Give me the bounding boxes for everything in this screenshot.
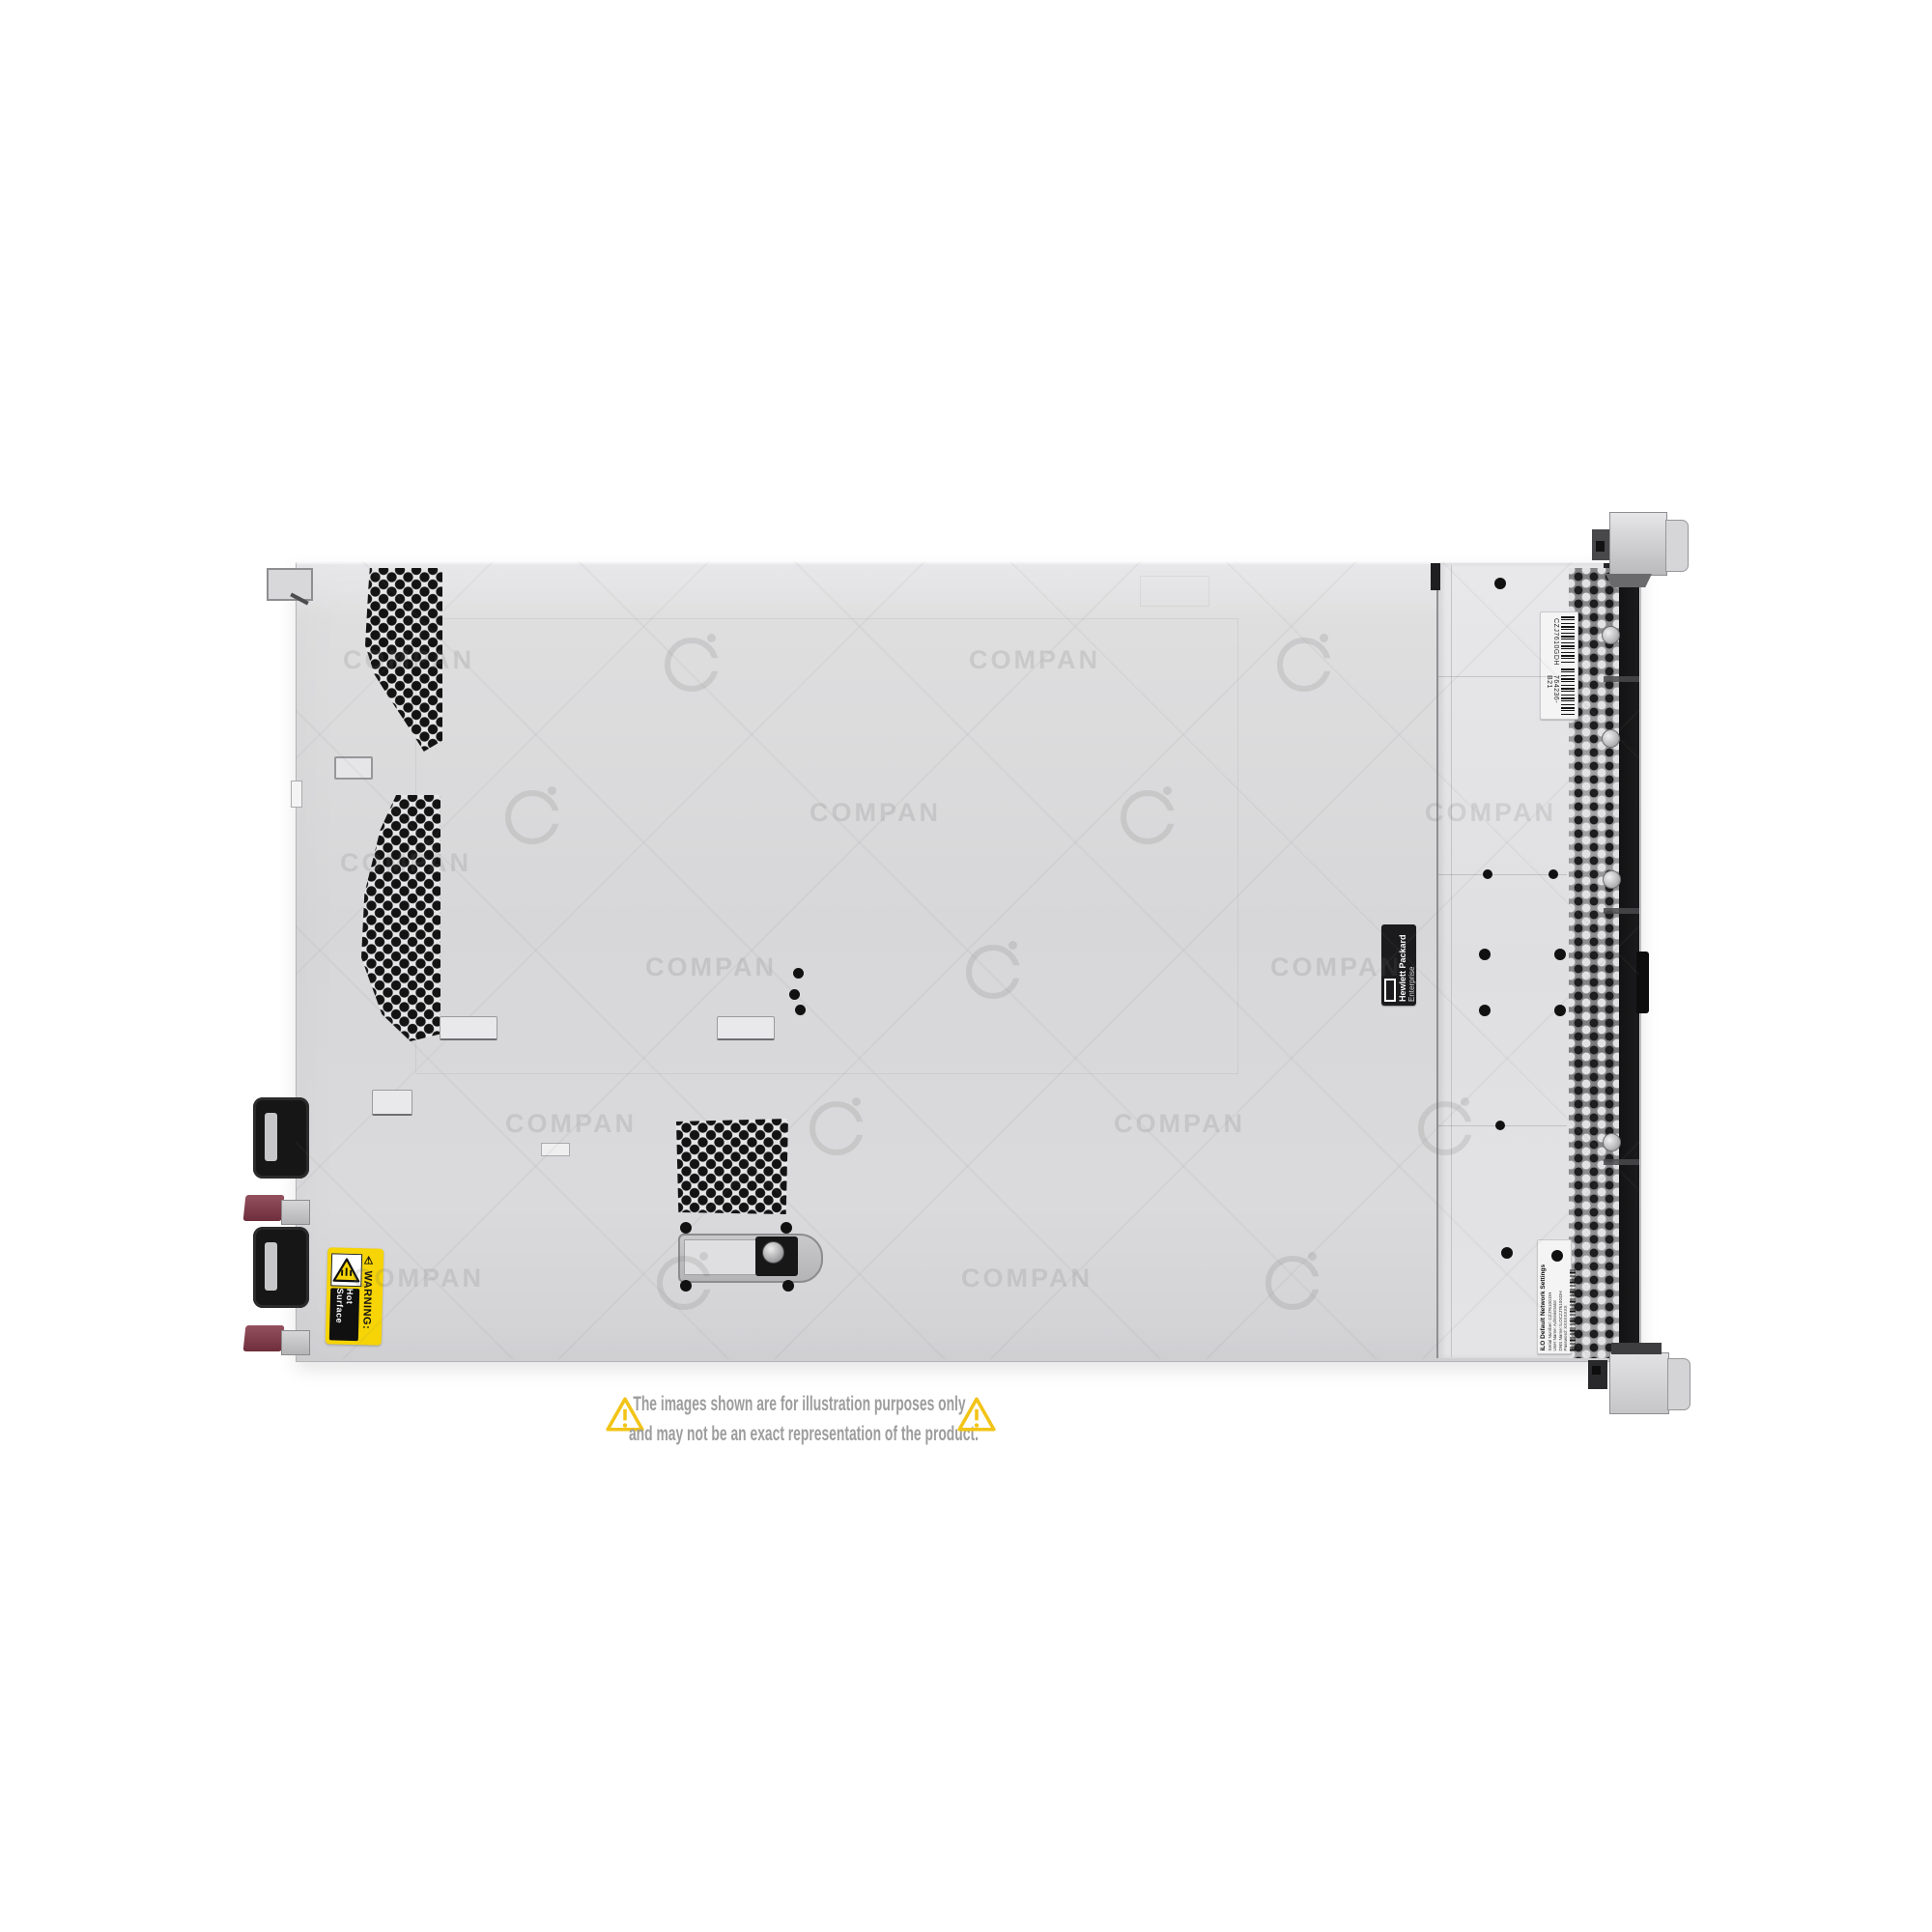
front-panel-seam: [1438, 676, 1567, 677]
screw-hole: [1554, 1005, 1566, 1016]
cover-keyhole-recess: [372, 1090, 412, 1116]
rack-ear-top: [1609, 512, 1667, 576]
cover-divider-tab: [1431, 563, 1440, 590]
warning-triangle-icon: [330, 1253, 362, 1287]
disclaimer-line1: The images shown are for illustration pu…: [629, 1389, 970, 1419]
torx-screw: [1603, 870, 1621, 889]
screw-hole: [1554, 949, 1566, 960]
rack-ear-bottom-latch: [1588, 1360, 1607, 1389]
cover-latch-recess: [684, 1239, 759, 1275]
rack-ear-top-shadow: [1605, 574, 1652, 587]
barcode: [1561, 616, 1575, 663]
rack-ear-top-thumbscrew: [1665, 520, 1689, 572]
ilo-label-line: Password: XXXXXXXX: [1563, 1240, 1568, 1350]
front-panel-seam: [1438, 874, 1567, 875]
serial-number-text: CZJ7610GDH: [1546, 618, 1559, 666]
rack-ear-bottom-face: [1611, 1343, 1662, 1354]
front-panel-seam: [1438, 1125, 1567, 1126]
part-number-text: 764236-B21: [1546, 675, 1559, 713]
hot-surface-warning-label: ⚠ WARNING: Hot Surface: [326, 1247, 384, 1345]
hpe-brand-line1: Hewlett Packard: [1398, 924, 1407, 1002]
torx-screw: [1602, 729, 1620, 748]
screw-hole: [1551, 1250, 1563, 1262]
screw-hole: [680, 1222, 692, 1234]
center-vent-grille: [676, 1119, 788, 1214]
psu-handle-2: [253, 1227, 309, 1308]
screw-hole: [1494, 578, 1506, 589]
warning-label-black-panel: Hot Surface: [329, 1288, 359, 1341]
rear-latch-inner: [541, 1143, 570, 1156]
disclaimer-line2: and may not be an exact representation o…: [629, 1419, 970, 1449]
psu-handle-slot: [265, 1242, 277, 1291]
product-photo-stage: ⚠ WARNING: Hot Surface CZJ7610GDH 764236…: [0, 0, 1932, 1932]
psu-connector-2: [281, 1330, 310, 1355]
hpe-logo-icon: [1384, 979, 1396, 1002]
warning-label-subtitle: Hot Surface: [334, 1288, 355, 1341]
screw-hole: [1501, 1247, 1513, 1259]
hpe-brand-line2: Enterprise: [1407, 924, 1416, 1002]
rear-tab: [291, 781, 302, 808]
hpe-brand-label: Hewlett Packard Enterprise: [1381, 924, 1416, 1006]
front-panel-seam: [1451, 565, 1452, 1357]
psu-connector-1: [281, 1200, 310, 1225]
cover-latch-screw: [762, 1241, 784, 1264]
disclaimer-warning-triangle-icon-right: [956, 1392, 997, 1436]
bezel-bay-seam: [1604, 908, 1639, 914]
cover-crease-line: [1140, 576, 1209, 607]
rack-ear-bottom: [1609, 1352, 1669, 1414]
rear-clip: [334, 756, 373, 780]
psu-release-tab-2: [243, 1325, 285, 1351]
screw-hole: [680, 1280, 692, 1292]
psu-handle-1: [253, 1097, 309, 1179]
ilo-label-title: iLO Default Network Settings: [1540, 1240, 1547, 1350]
bezel-bay-seam: [1604, 1159, 1639, 1165]
psu-release-tab-1: [243, 1195, 285, 1221]
rack-ear-bottom-thumbscrew: [1667, 1358, 1690, 1410]
torx-screw: [1603, 1133, 1621, 1151]
serial-number-label: CZJ7610GDH 764236-B21: [1540, 611, 1578, 720]
bezel-bay-seam: [1604, 676, 1639, 682]
screw-hole: [782, 1280, 794, 1292]
cover-crease-line: [415, 618, 1238, 1074]
screw-hole: [781, 1222, 792, 1234]
warning-label-title: ⚠ WARNING:: [360, 1254, 375, 1339]
bezel-protrusion: [1636, 952, 1649, 1013]
rack-ear-bottom-notch: [1592, 1366, 1601, 1375]
rack-ear-top-notch: [1596, 541, 1605, 552]
barcode: [1570, 1267, 1576, 1350]
screw-hole: [1479, 1005, 1491, 1016]
screw-hole: [1479, 949, 1491, 960]
psu-handle-slot: [265, 1113, 277, 1161]
torx-screw: [1602, 626, 1620, 644]
